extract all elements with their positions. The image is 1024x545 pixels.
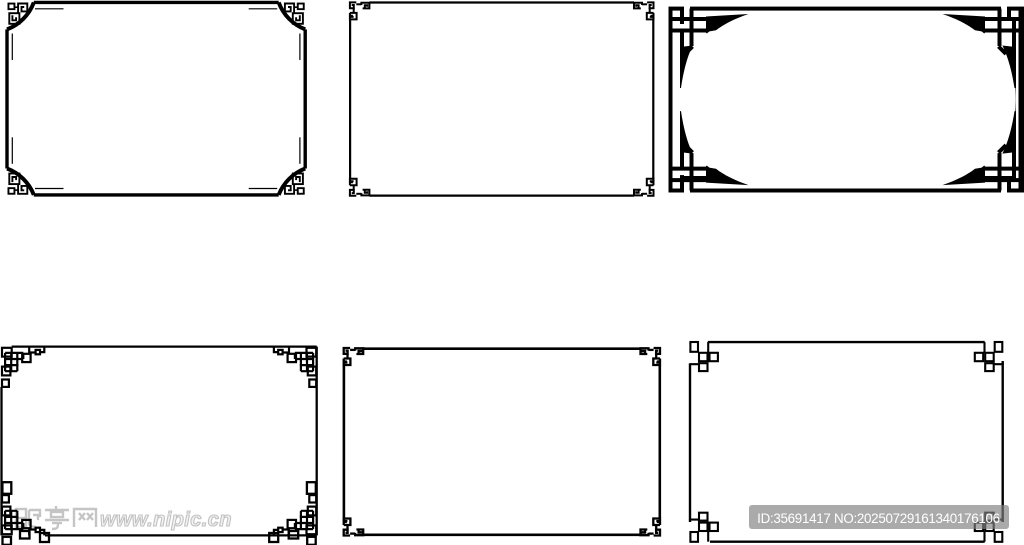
svg-text:www.nipic.cn: www.nipic.cn [100,509,232,531]
svg-text:ID:35691417 NO:202507291613401: ID:35691417 NO:20250729161340176106 [757,511,1000,526]
